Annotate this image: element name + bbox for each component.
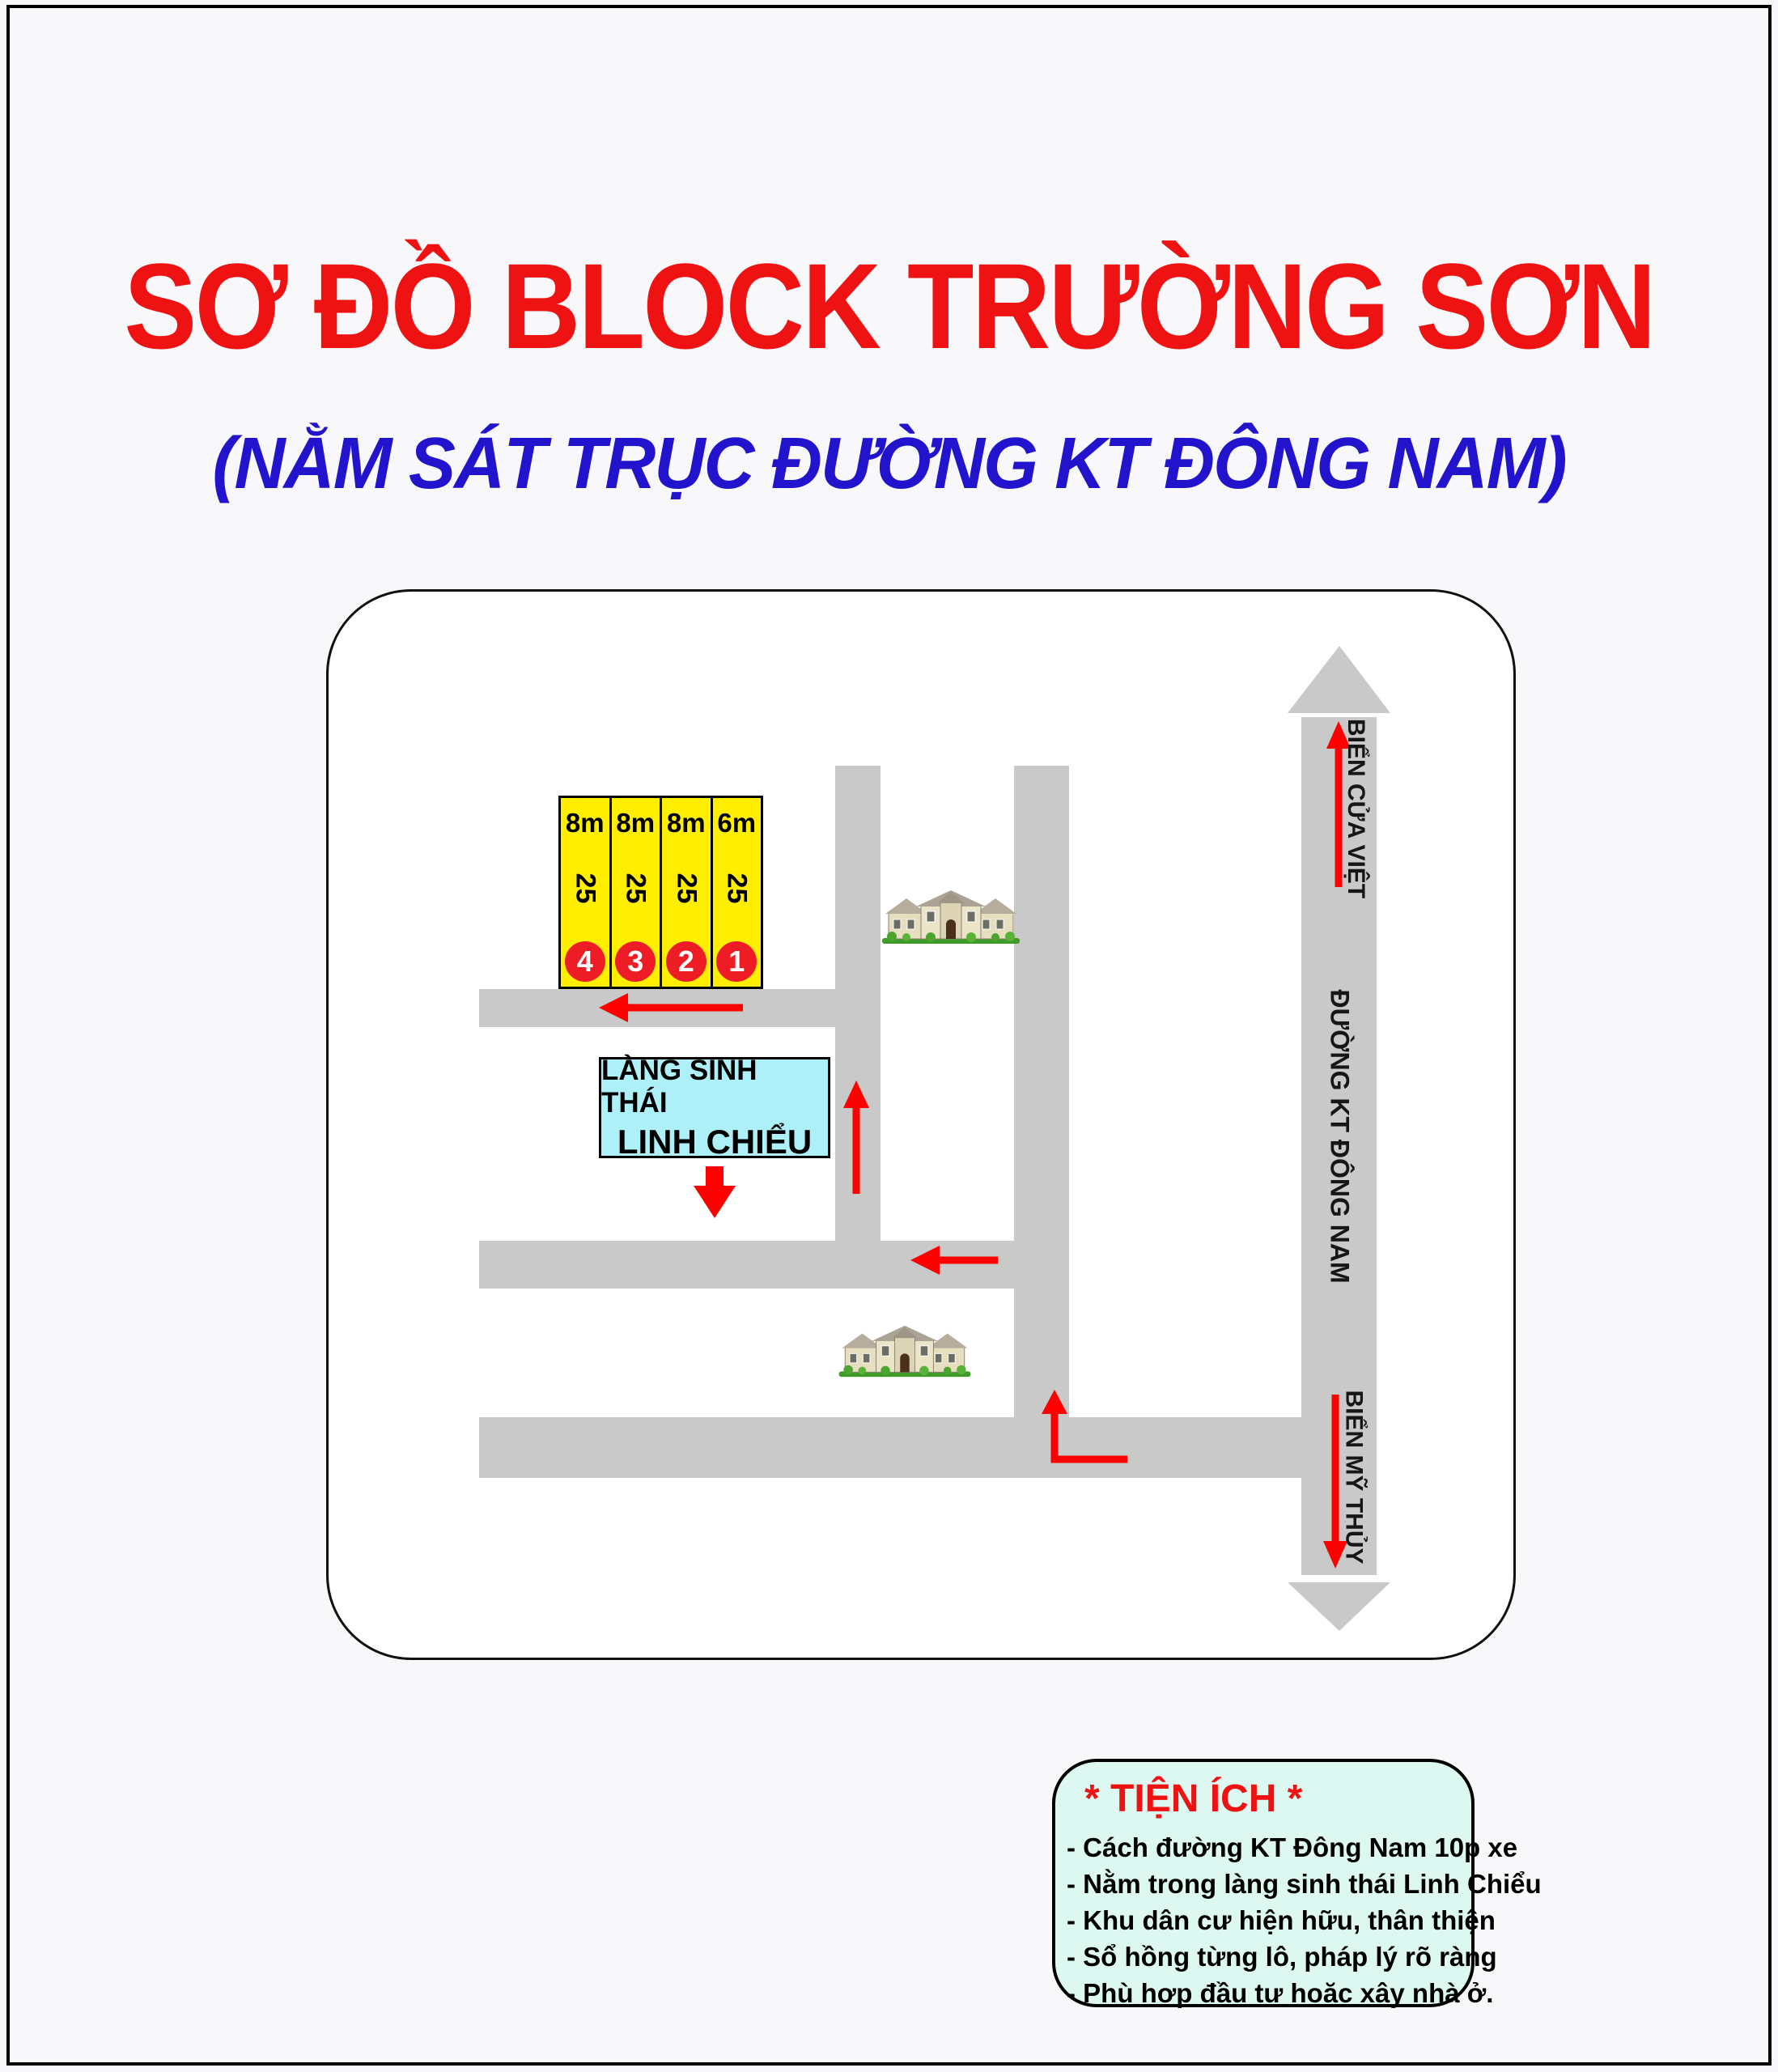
- road-arrowhead-down-icon: [1288, 1582, 1390, 1631]
- lot-depth-label: 25: [620, 873, 651, 904]
- lot-number-badge: 4: [565, 941, 605, 982]
- road-vertical-inner-right: [1014, 766, 1069, 1478]
- lot-depth-label: 25: [721, 873, 753, 904]
- road-label-bien-my-thuy: BIỂN MỸ THỦY: [1340, 1391, 1368, 1565]
- lot-block: 8m 25 4 8m 25 3 8m 25 2 6m 25 1: [558, 796, 763, 989]
- amenities-item: - Sổ hồng từng lô, pháp lý rõ ràng: [1067, 1938, 1460, 1975]
- lot-3: 8m 25 3: [609, 798, 660, 987]
- poster-subtitle: (NẰM SÁT TRỤC ĐƯỜNG KT ĐÔNG NAM): [27, 422, 1751, 506]
- arrow-down-eco-village-shaft: [706, 1166, 724, 1187]
- amenities-item: - Nằm trong làng sinh thái Linh Chiểu: [1067, 1866, 1460, 1902]
- road-label-bien-cua-viet: BIỂN CỬA VIỆT: [1342, 719, 1369, 897]
- lot-4: 8m 25 4: [561, 798, 609, 987]
- arrow-down-eco-village-head-icon: [694, 1186, 736, 1218]
- lot-2: 8m 25 2: [660, 798, 711, 987]
- amenities-box: * TIỆN ÍCH * - Cách đường KT Đông Nam 10…: [1052, 1759, 1475, 2007]
- amenities-item: - Khu dân cư hiện hữu, thân thiện: [1067, 1902, 1460, 1938]
- lot-width-label: 8m: [662, 808, 711, 839]
- lot-width-label: 8m: [561, 808, 609, 839]
- lot-width-label: 8m: [612, 808, 660, 839]
- road-lots-street: [479, 989, 881, 1027]
- eco-village-label-box: LÀNG SINH THÁI LINH CHIỂU: [599, 1057, 830, 1158]
- house-icon: [882, 889, 1020, 945]
- lot-depth-label: 25: [569, 873, 600, 904]
- road-arrowhead-up-icon: [1288, 646, 1390, 713]
- poster-page: SƠ ĐỒ BLOCK TRƯỜNG SƠN (NẰM SÁT TRỤC ĐƯỜ…: [0, 0, 1778, 2072]
- lot-number-badge: 1: [716, 941, 757, 982]
- lot-number-badge: 2: [666, 941, 707, 982]
- lot-depth-label: 25: [670, 873, 702, 904]
- poster-title: SƠ ĐỒ BLOCK TRƯỜNG SƠN: [89, 236, 1689, 376]
- road-bottom-street: [479, 1417, 1301, 1478]
- house-icon: [834, 1324, 976, 1378]
- road-middle-street: [479, 1241, 1069, 1289]
- lot-width-label: 6m: [713, 808, 762, 839]
- amenities-item: - Phù hợp đầu tư hoặc xây nhà ở.: [1067, 1975, 1460, 2011]
- road-vertical-inner-left: [835, 766, 881, 1289]
- amenities-item: - Cách đường KT Đông Nam 10p xe: [1067, 1829, 1460, 1866]
- lot-number-badge: 3: [615, 941, 656, 982]
- site-map-panel: 8m 25 4 8m 25 3 8m 25 2 6m 25 1 LÀNG SIN…: [326, 589, 1516, 1660]
- eco-village-name-line2: LINH CHIỂU: [617, 1123, 812, 1161]
- lot-1: 6m 25 1: [711, 798, 762, 987]
- road-label-duong-kt-dong-nam: ĐƯỜNG KT ĐÔNG NAM: [1325, 990, 1355, 1265]
- amenities-title: * TIỆN ÍCH *: [1084, 1777, 1460, 1821]
- eco-village-name-line1: LÀNG SINH THÁI: [601, 1055, 828, 1119]
